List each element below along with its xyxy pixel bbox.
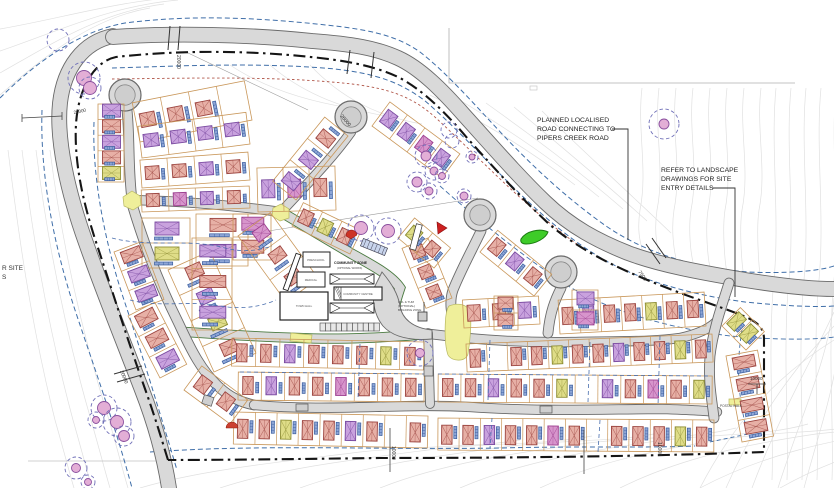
- svg-text:10000: 10000: [750, 376, 763, 381]
- svg-text:(OPTIONAL WORKS): (OPTIONAL WORKS): [337, 266, 362, 270]
- svg-text:DRAWINGS FOR SITE: DRAWINGS FOR SITE: [661, 176, 732, 183]
- svg-text:PIPERS CREEK ROAD: PIPERS CREEK ROAD: [537, 135, 609, 142]
- svg-text:ENTRY DETAILS: ENTRY DETAILS: [661, 185, 714, 192]
- svg-text:10000: 10000: [656, 442, 662, 456]
- svg-text:COMMUNITY ZONE: COMMUNITY ZONE: [334, 261, 368, 265]
- svg-text:MEDICAL: MEDICAL: [305, 278, 318, 282]
- svg-text:20000: 20000: [175, 55, 181, 69]
- svg-text:R SITE: R SITE: [2, 265, 24, 272]
- svg-text:POSTAL WALK: POSTAL WALK: [720, 404, 743, 408]
- svg-text:BUILDING ZONE: BUILDING ZONE: [398, 308, 421, 312]
- svg-text:10000: 10000: [390, 446, 396, 460]
- svg-text:ROAD CONNECTING TO: ROAD CONNECTING TO: [537, 126, 615, 133]
- svg-text:REFER TO LANDSCAPE: REFER TO LANDSCAPE: [661, 167, 739, 174]
- svg-text:COMMUNITY CENTRE: COMMUNITY CENTRE: [343, 292, 373, 296]
- svg-text:S: S: [2, 274, 7, 281]
- svg-text:PRESCHOOL: PRESCHOOL: [307, 258, 325, 262]
- svg-text:TOWN HALL: TOWN HALL: [296, 304, 313, 308]
- svg-text:PLANNED LOCALISED: PLANNED LOCALISED: [537, 117, 609, 124]
